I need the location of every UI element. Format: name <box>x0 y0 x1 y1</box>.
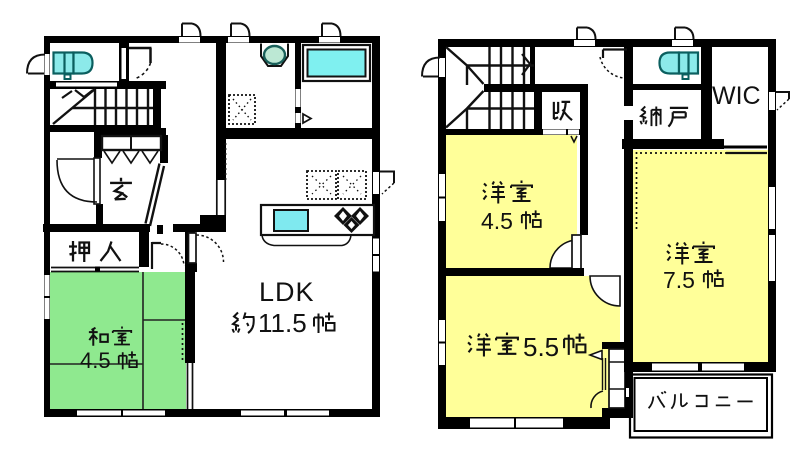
svg-text:11.5: 11.5 <box>258 308 307 338</box>
svg-text:4.5: 4.5 <box>80 348 111 373</box>
svg-text:7.5: 7.5 <box>663 267 695 293</box>
svg-text:5.5: 5.5 <box>523 332 559 362</box>
svg-text:WIC: WIC <box>712 82 761 110</box>
svg-text:4.5: 4.5 <box>481 208 513 234</box>
svg-text:LDK: LDK <box>259 277 315 307</box>
